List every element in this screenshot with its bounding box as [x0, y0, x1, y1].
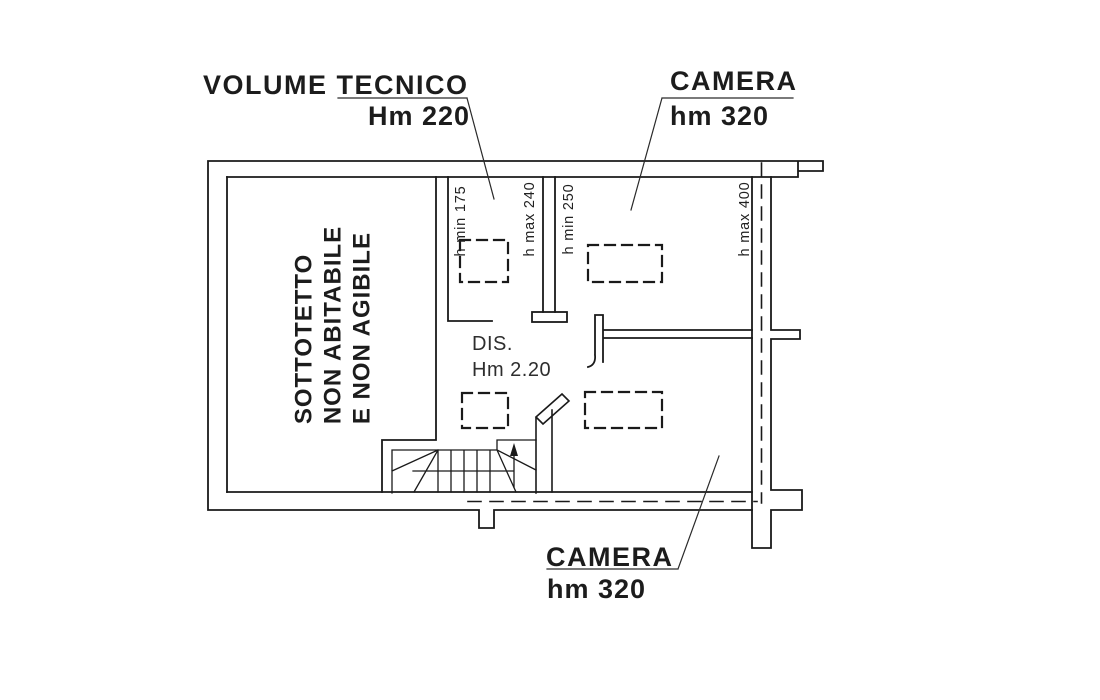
- stair-arrow-head: [510, 443, 518, 456]
- floor-plan-canvas: VOLUME TECNICO Hm 220 CAMERA hm 320 CAME…: [0, 0, 1100, 700]
- right-wall: [752, 177, 802, 548]
- label-camera-top-height: hm 320: [670, 101, 769, 132]
- label-sottotetto-line3: E NON AGIBILE: [348, 226, 377, 424]
- label-sottotetto-line1: SOTTOTETTO: [289, 226, 318, 424]
- label-volume-tecnico-height: Hm 220: [368, 101, 470, 132]
- label-volume-tecnico: VOLUME TECNICO: [203, 70, 469, 101]
- annotation-h-min-175: h min 175: [453, 186, 469, 257]
- label-sottotetto-line2: NON ABITABILE: [318, 226, 347, 424]
- staircase: [392, 440, 536, 493]
- annotation-h-max-400: h max 400: [737, 182, 753, 257]
- camera-dividing-wall: [588, 315, 752, 367]
- label-sottotetto: SOTTOTETTO NON ABITABILE E NON AGIBILE: [289, 226, 376, 424]
- skylight-camera-top: [588, 245, 662, 282]
- label-camera-bottom-height: hm 320: [547, 574, 646, 605]
- label-camera-top: CAMERA: [670, 66, 798, 97]
- stair-door: [536, 394, 569, 493]
- annotation-h-min-250: h min 250: [561, 184, 577, 255]
- skylight-camera-bottom: [585, 392, 662, 428]
- label-camera-bottom: CAMERA: [546, 542, 674, 573]
- label-dis: DIS.: [472, 333, 513, 356]
- leader-lines: [338, 98, 793, 569]
- skylight-dis: [462, 393, 508, 428]
- annotation-h-max-240: h max 240: [522, 182, 538, 257]
- label-dis-height: Hm 2.20: [472, 359, 551, 382]
